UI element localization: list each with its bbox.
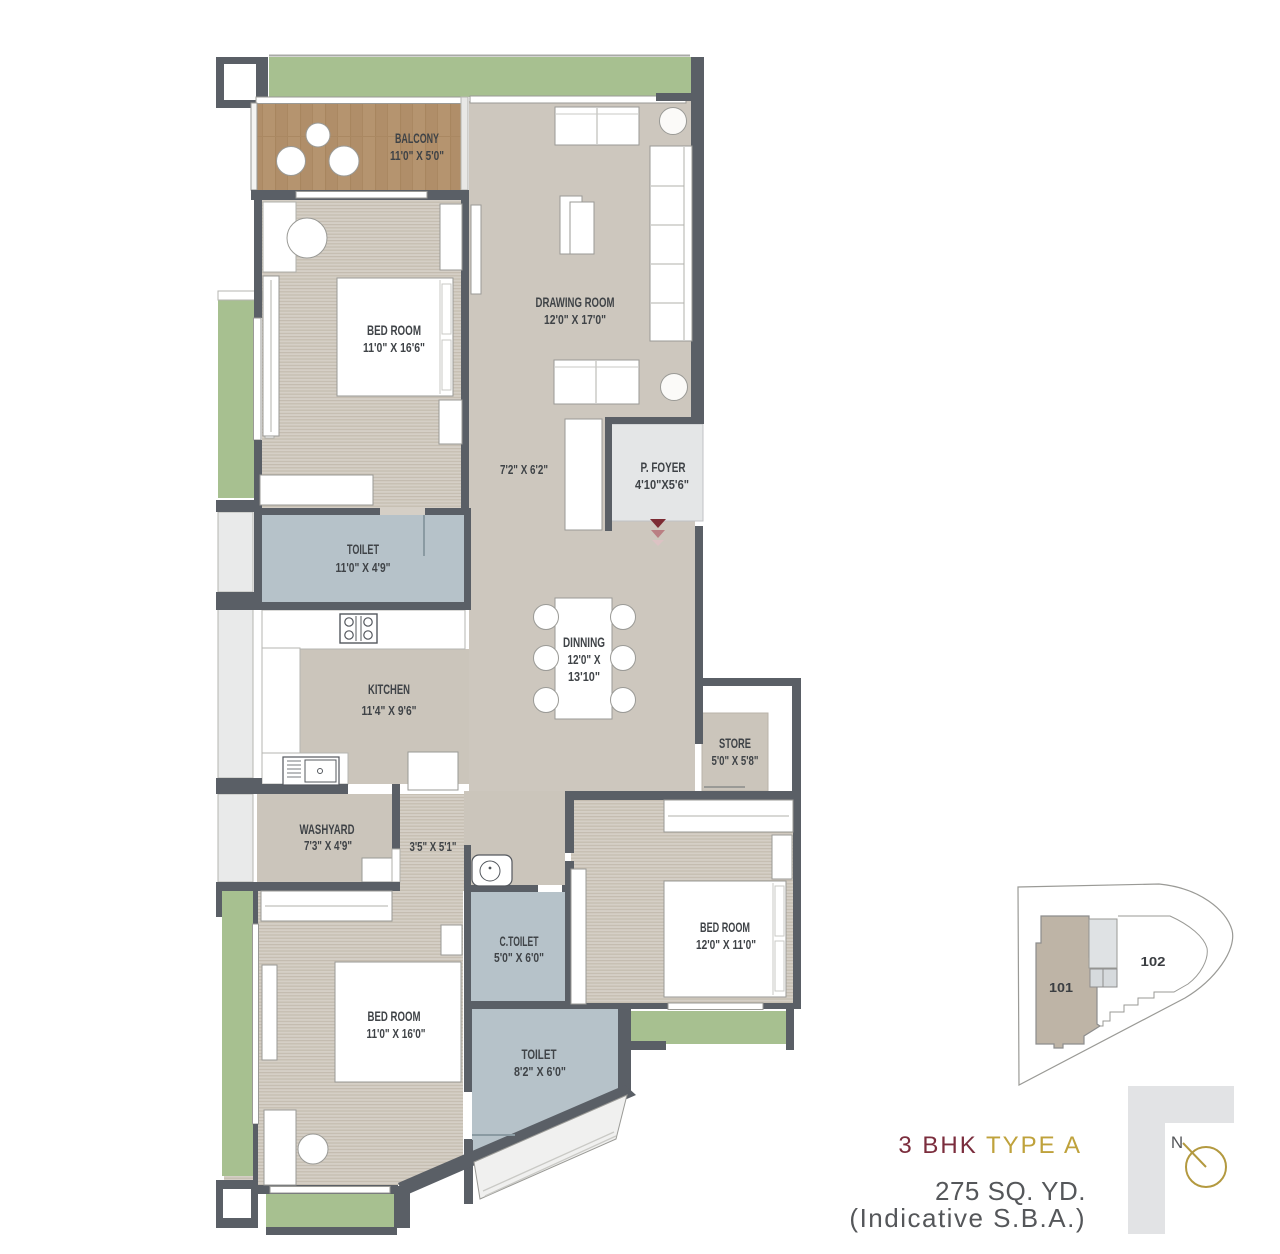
svg-text:13'10": 13'10": [568, 669, 600, 684]
svg-text:KITCHEN: KITCHEN: [368, 681, 410, 697]
svg-text:P. FOYER: P. FOYER: [641, 459, 686, 475]
svg-text:DINNING: DINNING: [563, 634, 605, 650]
svg-text:STORE: STORE: [719, 735, 751, 751]
svg-text:8'2" X 6'0": 8'2" X 6'0": [514, 1064, 566, 1079]
svg-text:4'10"X5'6": 4'10"X5'6": [635, 477, 689, 492]
svg-text:12'0" X: 12'0" X: [568, 652, 601, 667]
svg-text:7'2" X 6'2": 7'2" X 6'2": [500, 462, 548, 477]
svg-text:DRAWING ROOM: DRAWING ROOM: [536, 294, 615, 310]
svg-text:(Indicative S.B.A.): (Indicative S.B.A.): [849, 1203, 1086, 1233]
svg-text:11'0" X 16'0": 11'0" X 16'0": [367, 1026, 426, 1041]
svg-text:7'3" X 4'9": 7'3" X 4'9": [304, 838, 352, 853]
svg-text:11'0" X 5'0": 11'0" X 5'0": [390, 148, 444, 163]
svg-text:WASHYARD: WASHYARD: [300, 821, 355, 837]
svg-text:TOILET: TOILET: [522, 1046, 557, 1062]
svg-text:N: N: [1171, 1133, 1183, 1152]
svg-text:101: 101: [1049, 980, 1073, 995]
svg-text:BED ROOM: BED ROOM: [368, 1008, 421, 1024]
svg-text:5'0" X 5'8": 5'0" X 5'8": [712, 753, 759, 768]
svg-text:BED ROOM: BED ROOM: [367, 322, 421, 338]
svg-text:12'0" X 17'0": 12'0" X 17'0": [544, 312, 606, 327]
svg-text:11'0" X 4'9": 11'0" X 4'9": [336, 560, 391, 575]
svg-text:3 BHK TYPE A: 3 BHK TYPE A: [898, 1132, 1082, 1159]
svg-text:11'4" X 9'6": 11'4" X 9'6": [362, 703, 417, 718]
svg-text:11'0" X 16'6": 11'0" X 16'6": [363, 340, 425, 355]
svg-text:5'0" X 6'0": 5'0" X 6'0": [494, 950, 544, 965]
svg-text:12'0" X 11'0": 12'0" X 11'0": [696, 937, 756, 952]
svg-text:C.TOILET: C.TOILET: [500, 933, 539, 949]
svg-text:BED ROOM: BED ROOM: [700, 919, 750, 935]
svg-text:3'5" X 5'1": 3'5" X 5'1": [410, 839, 457, 854]
svg-text:BALCONY: BALCONY: [395, 130, 439, 146]
svg-text:102: 102: [1141, 954, 1166, 969]
svg-text:275 SQ. YD.: 275 SQ. YD.: [935, 1176, 1086, 1206]
svg-text:TOILET: TOILET: [347, 541, 379, 557]
